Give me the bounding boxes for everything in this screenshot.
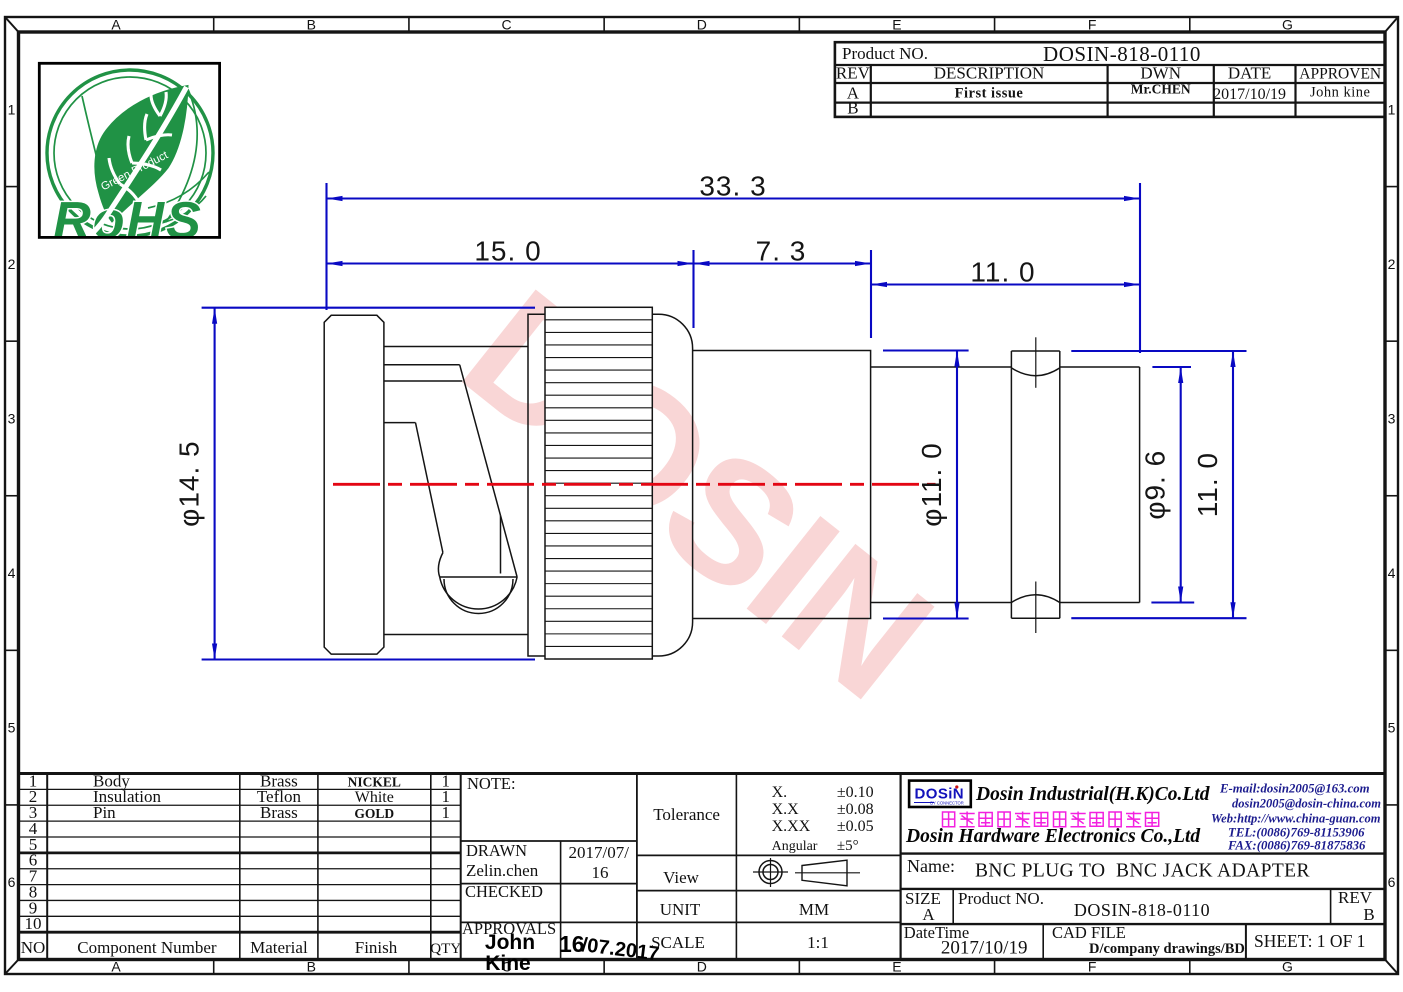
svg-text:Kine: Kine [485,952,531,975]
svg-text:2017/07/: 2017/07/ [568,843,629,862]
svg-text:SHEET: 1 OF 1: SHEET: 1 OF 1 [1254,931,1365,951]
svg-text:11. 0: 11. 0 [970,257,1035,288]
svg-text:B: B [307,17,316,33]
svg-text:C: C [501,17,511,33]
svg-text:NO: NO [21,938,46,957]
svg-text:DATE: DATE [1228,64,1271,83]
svg-text:Material: Material [250,938,308,957]
svg-text:B: B [1363,905,1374,924]
svg-text:1: 1 [441,803,450,822]
svg-text:DOSIN-818-0110: DOSIN-818-0110 [1043,42,1201,66]
svg-text:4: 4 [1388,565,1396,581]
svg-text:Tolerance: Tolerance [653,805,720,824]
svg-text:5: 5 [8,720,16,736]
svg-text:6: 6 [8,874,16,890]
svg-text:UNIT: UNIT [660,900,701,919]
svg-text:2017/10/19: 2017/10/19 [941,938,1028,959]
svg-text:G: G [1282,17,1293,33]
svg-text:1: 1 [8,101,16,117]
svg-text:Name:: Name: [907,856,955,876]
svg-text:FAX:(0086)769-81875836: FAX:(0086)769-81875836 [1227,839,1366,853]
svg-text:NICKEL: NICKEL [348,774,401,789]
svg-text:16: 16 [592,863,609,882]
svg-text:X.X: X.X [772,801,800,818]
svg-text:5: 5 [1388,720,1396,736]
svg-text:DOSIN-818-0110: DOSIN-818-0110 [1074,900,1210,920]
svg-text:E-mail:dosin2005@163.com: E-mail:dosin2005@163.com [1219,782,1370,796]
svg-text:Dosin Hardware Electronics Co.: Dosin Hardware Electronics Co.,Ltd [905,826,1200,847]
svg-text:2017/10/19: 2017/10/19 [1213,86,1286,103]
svg-text:F: F [1088,959,1097,975]
svg-text:DRAWN: DRAWN [466,841,527,860]
svg-text:John: John [485,931,535,954]
svg-text:Finish: Finish [355,938,398,957]
svg-text:2: 2 [1388,256,1396,272]
svg-text:BY CONNECTOR: BY CONNECTOR [930,800,964,805]
svg-text:6: 6 [1388,874,1396,890]
svg-text:4: 4 [8,565,16,581]
svg-text:±0.08: ±0.08 [837,801,874,818]
svg-text:±0.05: ±0.05 [837,818,874,835]
svg-text:X.XX: X.XX [772,818,811,835]
svg-text:DWN: DWN [1140,64,1181,83]
svg-text:3: 3 [1388,410,1396,426]
svg-text:D: D [697,17,707,33]
svg-text:Product NO.: Product NO. [842,44,928,63]
svg-text:MM: MM [799,900,829,919]
svg-text:CHECKED: CHECKED [465,882,543,901]
svg-text:View: View [663,868,700,887]
svg-text:2: 2 [8,256,16,272]
svg-text:Angular: Angular [772,839,818,854]
svg-text:E: E [892,17,901,33]
svg-text:dosin2005@dosin-china.com: dosin2005@dosin-china.com [1232,797,1381,811]
svg-text:Dosin Industrial(H.K)Co.Ltd: Dosin Industrial(H.K)Co.Ltd [975,784,1210,805]
svg-text:±5°: ±5° [837,838,859,854]
svg-text:NOTE:: NOTE: [467,774,516,793]
svg-text:A: A [111,959,121,975]
svg-text:TEL:(0086)769-81153906: TEL:(0086)769-81153906 [1228,826,1365,840]
svg-text:Mr.CHEN: Mr.CHEN [1131,82,1191,97]
svg-text:Component Number: Component Number [77,938,217,957]
svg-text:φ14. 5: φ14. 5 [174,440,205,526]
svg-text:SCALE: SCALE [651,933,705,952]
svg-text:QTY: QTY [430,941,461,957]
svg-text:White: White [355,789,394,806]
svg-text:F: F [1088,17,1097,33]
svg-text:Zelin.chen: Zelin.chen [466,861,539,880]
svg-text:1: 1 [1388,101,1396,117]
svg-text:15. 0: 15. 0 [474,236,541,267]
svg-text:E: E [892,959,901,975]
svg-text:33. 3: 33. 3 [699,171,766,202]
svg-text:B: B [307,959,316,975]
svg-text:GOLD: GOLD [354,806,394,821]
svg-text:G: G [1282,959,1293,975]
svg-text:X.: X. [772,784,788,801]
svg-text:Web:http://www.china-guan.com: Web:http://www.china-guan.com [1211,812,1381,826]
svg-text:BNC PLUG TO BNC JACK ADAPTER: BNC PLUG TO BNC JACK ADAPTER [975,861,1310,882]
svg-text:10: 10 [25,914,42,933]
svg-text:APPROVEN: APPROVEN [1299,66,1381,83]
svg-text:φ11. 0: φ11. 0 [916,442,947,526]
svg-text:Product NO.: Product NO. [958,889,1044,908]
svg-text:A: A [111,17,121,33]
svg-text:REV: REV [836,64,871,83]
svg-text:CAD FILE: CAD FILE [1052,923,1126,942]
svg-text:1:1: 1:1 [807,933,829,952]
svg-text:B: B [847,99,858,118]
svg-text:First issue: First issue [955,86,1024,102]
svg-text:Pin: Pin [93,803,116,822]
svg-text:DESCRIPTION: DESCRIPTION [934,64,1045,83]
svg-text:A: A [922,905,935,924]
svg-text:11. 0: 11. 0 [1192,452,1223,517]
svg-text:D: D [697,959,707,975]
svg-text:John kine: John kine [1310,85,1370,101]
svg-text:Brass: Brass [260,803,298,822]
svg-text:±0.10: ±0.10 [837,784,874,801]
svg-text:7. 3: 7. 3 [756,236,807,267]
svg-text:3: 3 [8,410,16,426]
svg-text:φ9. 6: φ9. 6 [1140,450,1171,520]
svg-text:D/company drawings/BD: D/company drawings/BD [1089,941,1245,957]
